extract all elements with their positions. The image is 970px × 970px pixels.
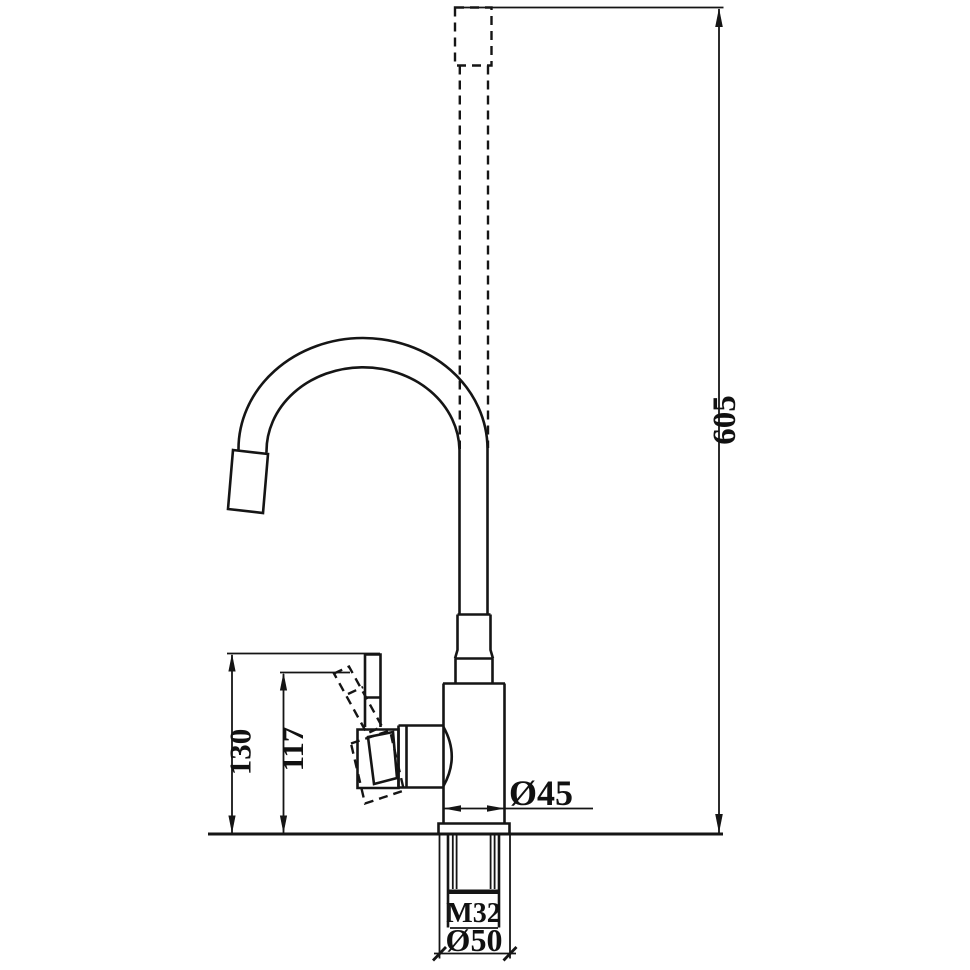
arrowhead-right (487, 805, 505, 811)
arrowhead-left (444, 805, 462, 811)
arrowhead-down (715, 814, 723, 833)
dimension-label-45: Ø45 (509, 773, 573, 813)
spout-outlet-sleeve (228, 450, 268, 513)
neck-section (443, 659, 505, 684)
handle-base-cap-tilted (368, 732, 397, 784)
mounting-flange (439, 824, 510, 835)
handle-lever-tilted-joint-line (348, 687, 363, 694)
technical-drawing-canvas: 605 130 117 Ø45 M32 (0, 0, 970, 970)
dimension-handle-height-tilted: 117 (275, 673, 350, 834)
shank-nut-bar (448, 890, 499, 895)
handle-lever-tilted-outline (334, 667, 382, 734)
faucet-outline (228, 338, 510, 834)
spout-inner-curve (266, 367, 459, 452)
arrowhead-down (280, 816, 287, 834)
handle-lever (365, 655, 381, 728)
handle-connector (399, 726, 444, 788)
spout-outer-curve (238, 338, 487, 450)
pipe-lower-section (455, 615, 493, 659)
arrowhead-up (280, 673, 287, 691)
dimension-label-130: 130 (223, 729, 258, 776)
dimension-body-diameter: Ø45 (444, 773, 594, 813)
dimension-total-height: 605 (457, 8, 743, 834)
arrowhead-down (228, 816, 235, 834)
dimension-label-50: Ø50 (446, 922, 503, 958)
dimension-label-605: 605 (707, 395, 743, 445)
flexible-spout-straight-position-dashed (455, 8, 492, 450)
dimension-label-117: 117 (275, 727, 310, 772)
faucet-dimension-drawing: 605 130 117 Ø45 M32 (0, 0, 970, 970)
arrowhead-up (715, 8, 723, 27)
spout-tip-raised-outline (455, 8, 492, 66)
arrowhead-up (228, 654, 235, 672)
shank-thread-lines (453, 834, 495, 889)
